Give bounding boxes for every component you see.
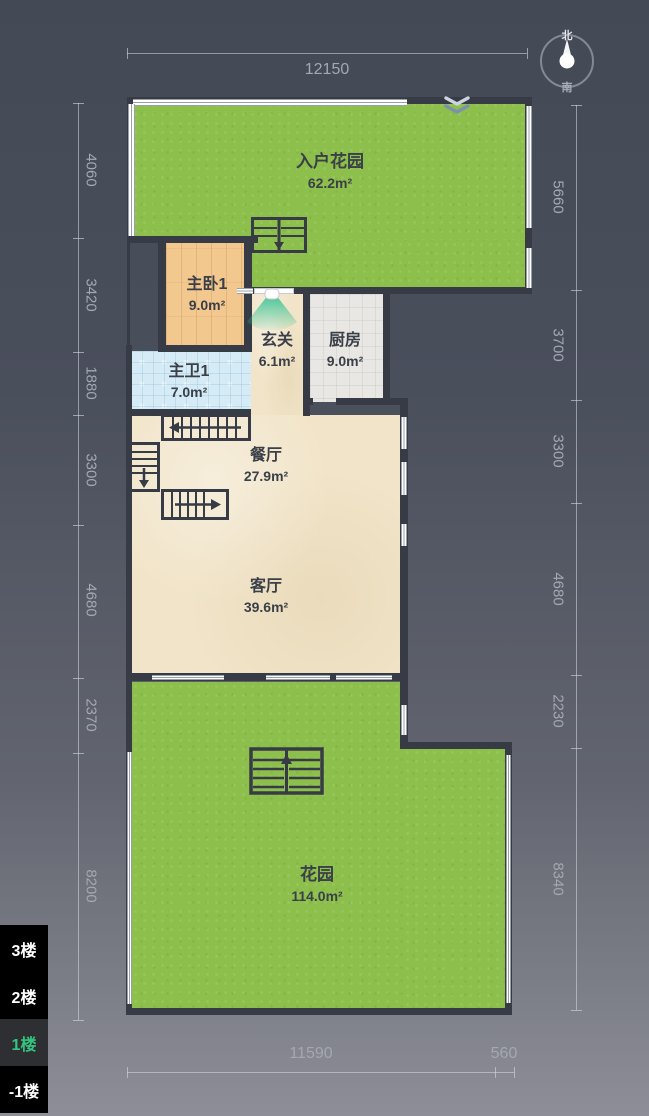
window	[127, 752, 132, 1004]
dimension-right: 2230	[550, 694, 567, 727]
wall	[400, 742, 512, 749]
entrance-arrow-icon	[443, 96, 471, 115]
dimension-bottom: 560	[491, 1045, 518, 1063]
window	[526, 248, 532, 288]
room-area: 27.9m²	[244, 467, 288, 487]
room-name: 主卫1	[169, 361, 210, 383]
room-area: 7.0m²	[169, 383, 210, 403]
compass-south-label: 南	[562, 79, 573, 95]
room-name: 厨房	[327, 330, 364, 352]
dimension-left: 3300	[83, 453, 100, 486]
room-name: 客厅	[244, 576, 288, 598]
wall	[303, 398, 313, 405]
dimension-left: 4060	[83, 153, 100, 186]
room-area: 6.1m²	[259, 352, 296, 372]
garden-floor-right	[403, 748, 507, 1010]
window	[152, 675, 224, 680]
stairs-icon	[161, 414, 251, 441]
stairs-icon	[161, 489, 229, 520]
room-label-hallway: 玄关 6.1m²	[259, 330, 296, 372]
room-name: 花园	[291, 863, 342, 887]
dimension-right: 3700	[550, 328, 567, 361]
window	[401, 524, 407, 546]
window	[336, 675, 392, 680]
room-name: 入户花园	[296, 150, 364, 174]
dimension-left: 3420	[83, 278, 100, 311]
room-label-kitchen: 厨房 9.0m²	[327, 330, 364, 372]
dimension-left: 4680	[83, 583, 100, 616]
dimension-right: 5660	[550, 180, 567, 213]
compass-icon: 北 南	[536, 26, 598, 96]
dimension-line-left	[78, 103, 79, 1020]
dimension-right: 4680	[550, 572, 567, 605]
room-name: 主卧1	[187, 274, 228, 296]
window	[506, 755, 511, 1003]
door-swing-icon	[246, 289, 298, 331]
window	[401, 705, 407, 735]
wall	[383, 290, 390, 405]
stairs-icon	[249, 747, 324, 795]
room-label-master-bedroom: 主卧1 9.0m²	[187, 274, 228, 316]
compass-north-label: 北	[562, 27, 573, 43]
dimension-right: 3300	[550, 434, 567, 467]
wall	[127, 1008, 512, 1015]
dimension-line-bottom	[127, 1072, 514, 1073]
window	[266, 675, 330, 680]
room-label-garden: 花园 114.0m²	[291, 863, 342, 906]
room-label-dining: 餐厅 27.9m²	[244, 445, 288, 487]
room-label-entry-garden: 入户花园 62.2m²	[296, 150, 364, 193]
floor-selector: 3楼 2楼 1楼 -1楼	[0, 925, 48, 1113]
wall	[336, 398, 390, 405]
dimension-left: 2370	[83, 698, 100, 731]
wall	[158, 236, 166, 352]
room-label-living: 客厅 39.6m²	[244, 576, 288, 618]
floor-tab-2f[interactable]: 2楼	[0, 972, 48, 1019]
window	[128, 104, 135, 236]
stairs-icon	[128, 442, 160, 492]
room-area: 114.0m²	[291, 887, 342, 907]
stairs-icon	[251, 217, 307, 253]
floor-tab-3f[interactable]: 3楼	[0, 925, 48, 972]
room-label-master-bath: 主卫1 7.0m²	[169, 361, 210, 403]
dimension-left: 1880	[83, 366, 100, 399]
window	[401, 417, 407, 449]
window	[401, 462, 407, 495]
window	[526, 106, 532, 228]
wall	[158, 345, 252, 352]
room-name: 玄关	[259, 330, 296, 352]
dimension-line-top	[127, 53, 527, 54]
dimension-left: 8200	[83, 869, 100, 902]
dimension-bottom: 11590	[289, 1045, 332, 1063]
floor-tab-b1f[interactable]: -1楼	[0, 1066, 48, 1113]
garden-floor	[131, 682, 403, 1010]
dimension-right: 8340	[550, 862, 567, 895]
room-area: 9.0m²	[327, 352, 364, 372]
floor-tab-1f[interactable]: 1楼	[0, 1019, 48, 1066]
window	[133, 99, 407, 106]
wall	[127, 236, 258, 243]
wall	[127, 243, 130, 345]
dimension-top: 12150	[305, 61, 350, 79]
room-name: 餐厅	[244, 445, 288, 467]
room-area: 39.6m²	[244, 598, 288, 618]
room-area: 9.0m²	[187, 296, 228, 316]
room-area: 62.2m²	[296, 174, 364, 194]
dimension-line-right	[576, 105, 577, 1010]
floor-plan-viewer: 入户花园 62.2m² 主卧1 9.0m² 玄关 6.1m² 厨房 9.0m² …	[0, 0, 649, 1116]
